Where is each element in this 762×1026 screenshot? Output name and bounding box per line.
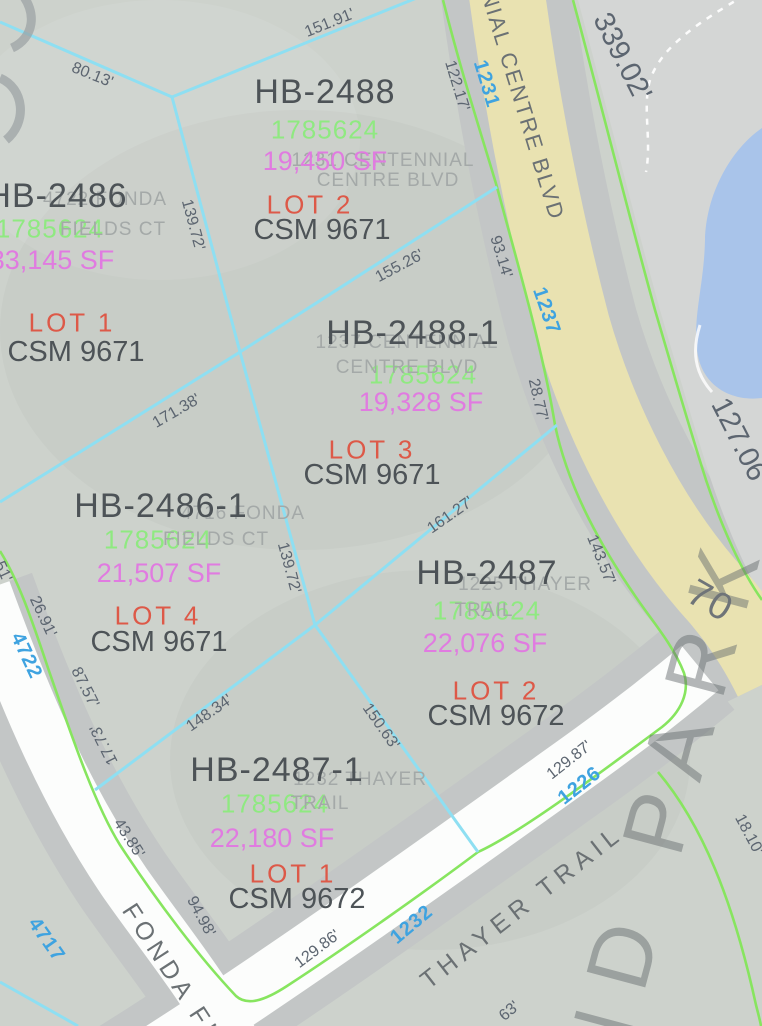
parcel-area-label: 19,450 SF xyxy=(263,147,388,175)
parcel-id-label: HB-2487 xyxy=(416,556,557,592)
parcel-area-label: 19,328 SF xyxy=(359,388,484,416)
parcel-address-line2: FIELDS CT xyxy=(163,530,269,550)
parcel-address-line2: TRAIL xyxy=(455,601,514,621)
parcel-csm-label: CSM 9671 xyxy=(7,337,144,367)
parcel-address-line2: TRAIL xyxy=(291,794,350,814)
parcel-id-label: HB-2488-1 xyxy=(326,316,499,352)
parcel-csm-label: CSM 9671 xyxy=(90,627,227,657)
parcel-address-line2: CENTRE BLVD xyxy=(336,358,479,378)
parcel-area-label: 22,076 SF xyxy=(423,629,548,657)
parcel-lot-label: LOT 1 xyxy=(29,309,116,336)
parcel-csm-label: CSM 9672 xyxy=(228,884,365,914)
parcel-csm-label: CSM 9671 xyxy=(253,215,390,245)
parcel-number: 1785624 xyxy=(271,116,379,143)
parcel-area-label: 22,180 SF xyxy=(210,824,335,852)
parcel-address-line2: FIELDS CT xyxy=(60,220,166,240)
parcel-map-canvas[interactable]: POND PARK CENTENNIAL CENTRE BLVD THAYER … xyxy=(0,0,762,1026)
parcel-area-label: 33,145 SF xyxy=(0,246,114,274)
parcel-id-label: HB-2488 xyxy=(254,75,395,111)
parcel-area-label: 21,507 SF xyxy=(97,559,222,587)
parcel-csm-label: CSM 9671 xyxy=(303,460,440,490)
parcel-id-label: HB-2487-1 xyxy=(190,753,363,789)
parcel-id-label: HB-2486 xyxy=(0,179,128,215)
parcel-id-label: HB-2486-1 xyxy=(74,489,247,525)
parcel-csm-label: CSM 9672 xyxy=(427,701,564,731)
